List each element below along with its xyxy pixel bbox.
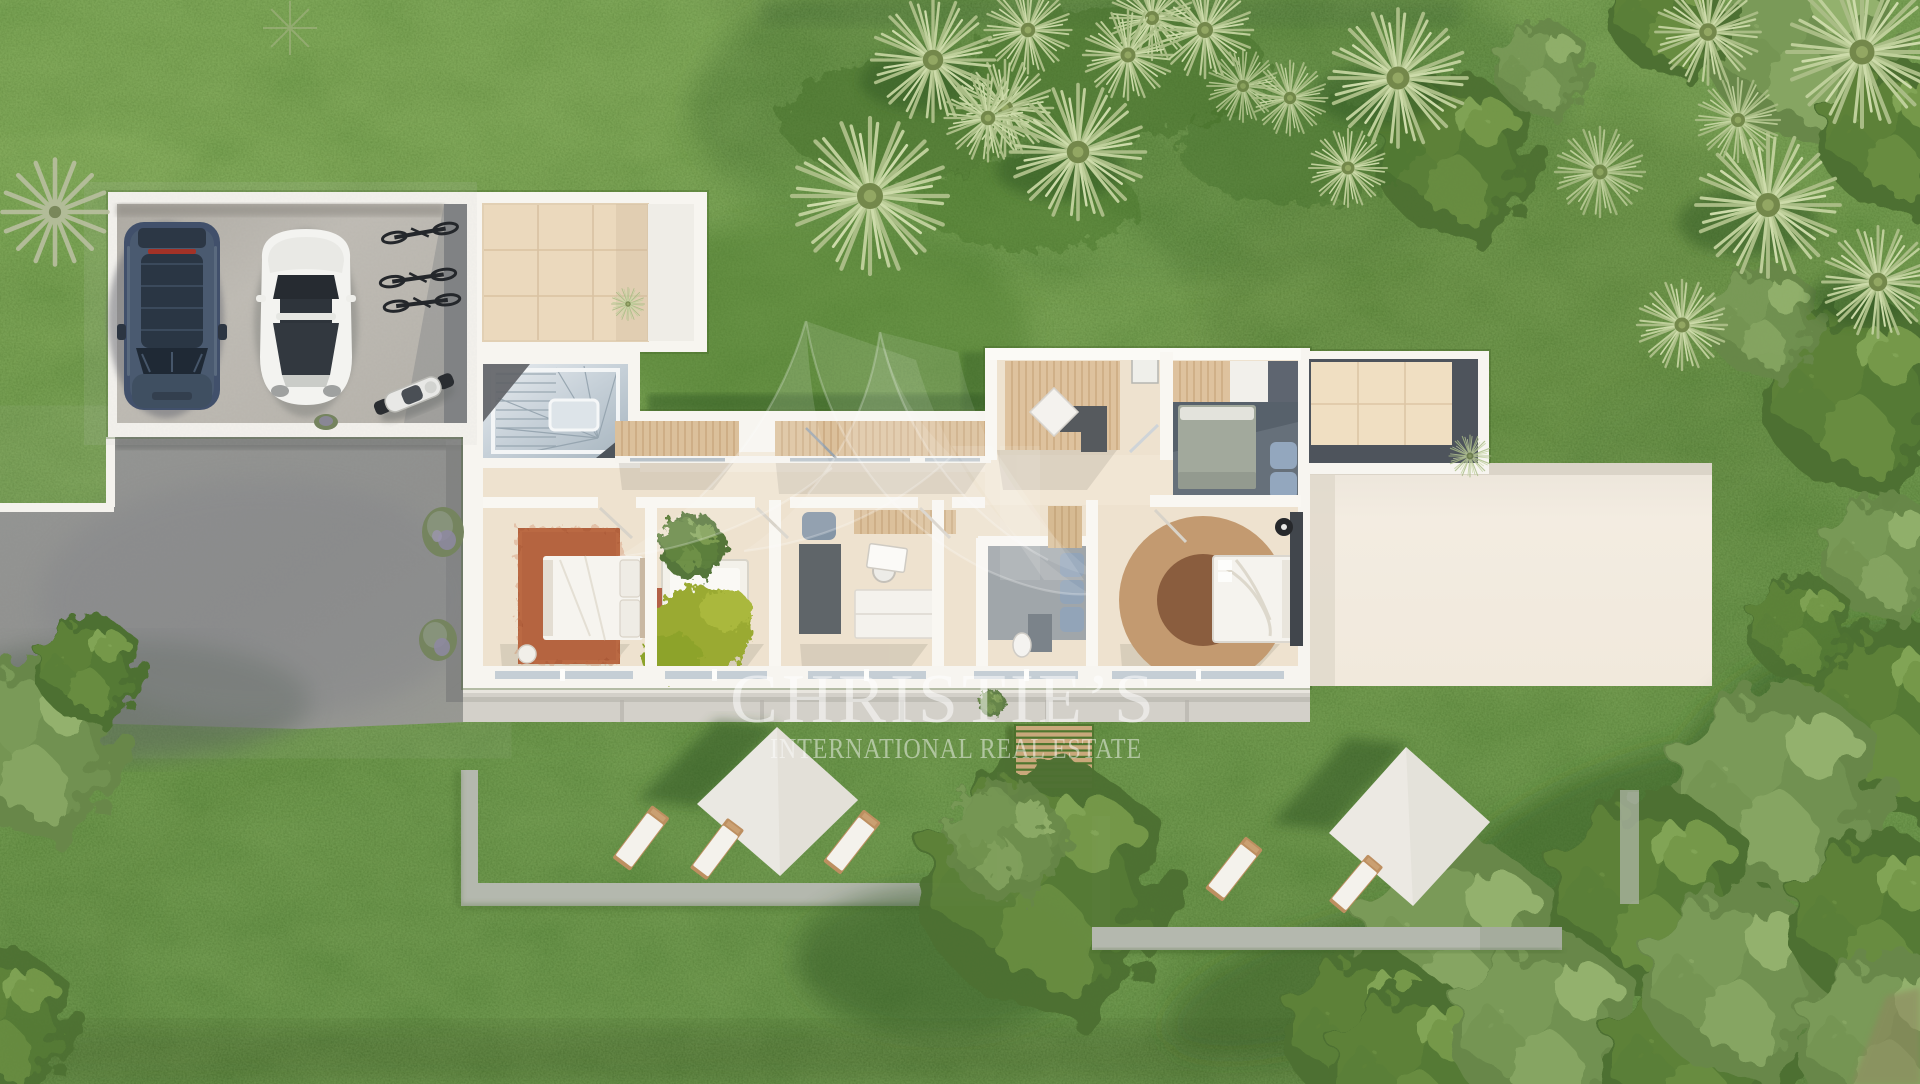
svg-text:INTERNATIONAL REAL ESTATE: INTERNATIONAL REAL ESTATE — [770, 733, 1142, 765]
svg-text:CHRISTIE’S: CHRISTIE’S — [730, 661, 1158, 738]
